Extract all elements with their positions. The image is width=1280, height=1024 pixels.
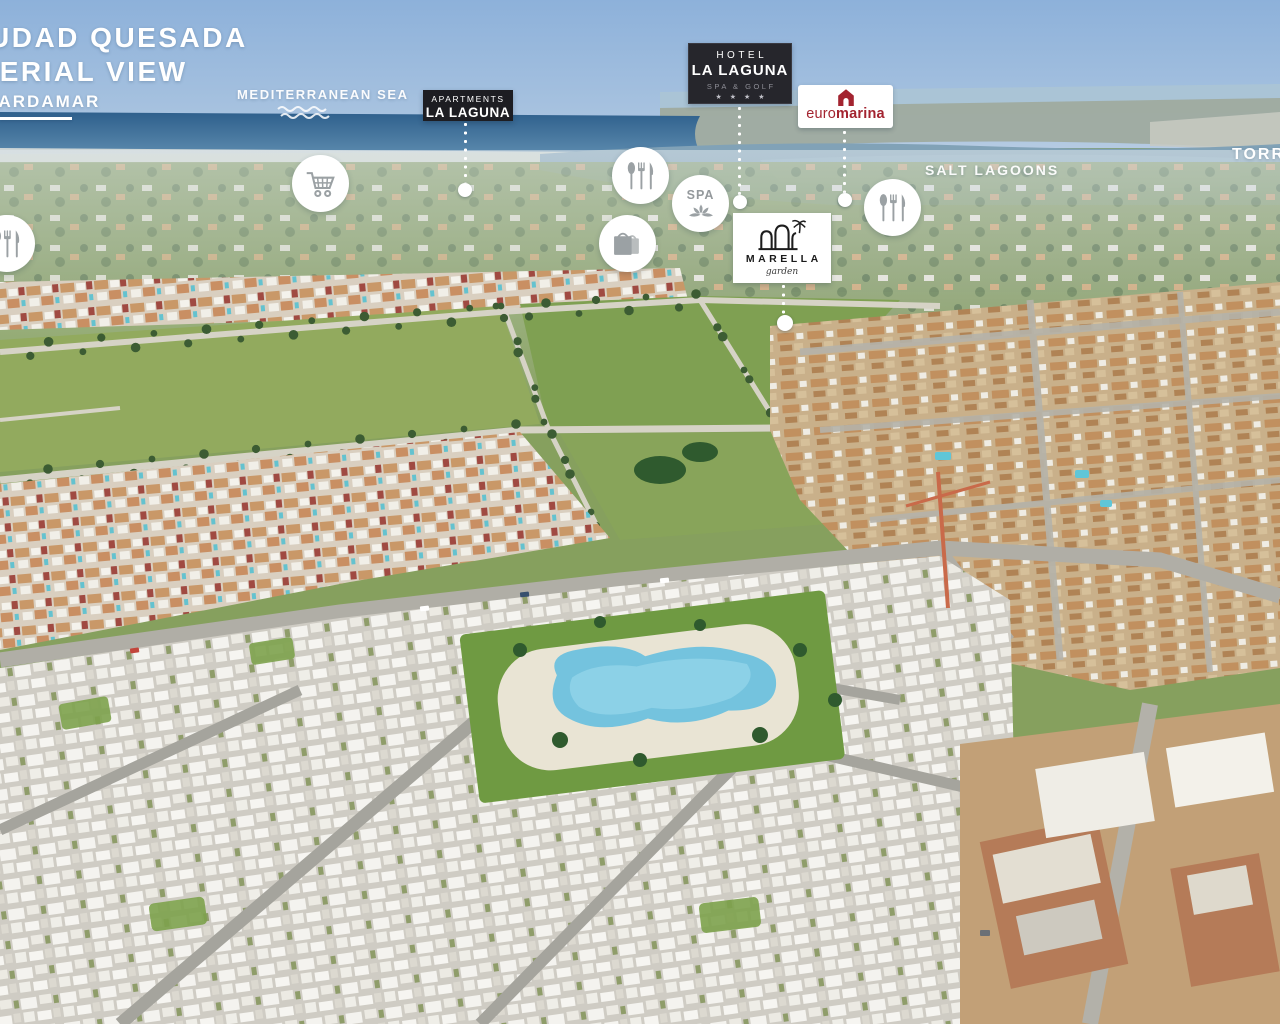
leader-line-hotel: [738, 107, 741, 195]
cutlery-icon: [877, 192, 909, 224]
marella-name: MARELLA: [742, 253, 821, 267]
location-dot-hotel: [733, 195, 747, 209]
leader-line-apartments: [464, 123, 467, 183]
apartments-la-laguna-label: APARTMENTS LA LAGUNA: [423, 90, 513, 121]
hotel-label-line3: SPA & GOLF: [689, 81, 791, 93]
cutlery-icon: [0, 228, 23, 260]
hotel-la-laguna-label: HOTEL LA LAGUNA SPA & GOLF ★ ★ ★ ★: [688, 43, 792, 104]
spa-lotus-icon: [688, 204, 714, 218]
salt-lagoons-label: SALT LAGOONS: [925, 162, 1059, 178]
waves-icon: [277, 104, 331, 119]
supermarket-badge: [292, 155, 349, 212]
restaurant-badge-center: [612, 147, 669, 204]
shopping-badge: [599, 215, 656, 272]
hotel-star-rating: ★ ★ ★ ★: [689, 93, 791, 102]
marella-garden-logo: MARELLA garden: [733, 213, 831, 283]
mediterranean-sea-label: MEDITERRANEAN SEA: [237, 87, 409, 102]
apartments-label-line2: LA LAGUNA: [423, 105, 513, 121]
restaurant-badge-east: [864, 179, 921, 236]
hotel-label-line2: LA LAGUNA: [689, 62, 791, 81]
mediterranean-sea: [0, 112, 700, 154]
page-subtitle-guardamar: GUARDAMAR: [0, 92, 100, 112]
euromarina-logo: euromarina: [798, 85, 893, 128]
euromarina-word-light: euro: [806, 106, 836, 122]
leader-line-euromarina: [843, 131, 846, 193]
euromarina-house-icon: [836, 88, 856, 107]
shopping-bags-icon: [612, 229, 643, 258]
location-dot-apartments: [458, 183, 472, 197]
page-title-line2: AERIAL VIEW: [0, 56, 188, 88]
leader-line-marella: [782, 285, 785, 316]
marella-arches-palm-icon: [757, 219, 807, 251]
hotel-label-line1: HOTEL: [689, 50, 791, 62]
euromarina-word-bold: marina: [836, 106, 885, 122]
location-dot-marella: [777, 315, 793, 331]
cutlery-icon: [625, 160, 657, 192]
shopping-cart-icon: [305, 169, 337, 199]
aerial-view-poster: CIUDAD QUESADA AERIAL VIEW GUARDAMAR MED…: [0, 0, 1280, 1024]
title-underline: [0, 117, 72, 120]
euromarina-wordmark: euromarina: [806, 107, 885, 123]
location-dot-euromarina: [838, 193, 852, 207]
page-title-line1: CIUDAD QUESADA: [0, 22, 248, 54]
spa-badge: SPA: [672, 175, 729, 232]
apartments-label-line1: APARTMENTS: [423, 94, 513, 105]
torrevieja-label: TORREVIEJA: [1232, 146, 1280, 164]
marella-tagline: garden: [766, 267, 798, 278]
spa-label: SPA: [687, 189, 715, 202]
